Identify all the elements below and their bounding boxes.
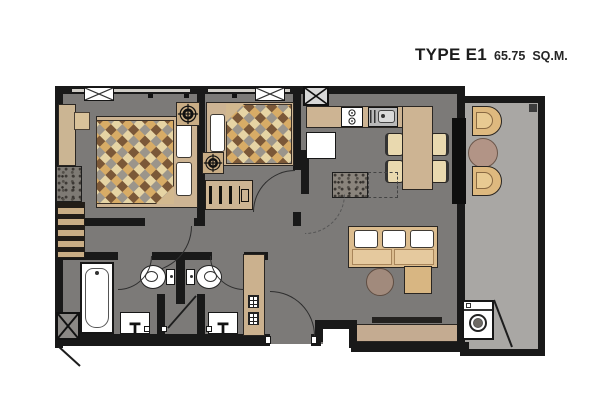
plan-title: TYPE E1 65.75 SQ.M. [415, 45, 585, 65]
unit-type-label: TYPE E1 [415, 45, 487, 65]
unit-area-value: 65.75 [494, 49, 525, 63]
unit-area-unit: SQ.M. [532, 49, 567, 63]
floor-plan-screen: TYPE E1 65.75 SQ.M. [0, 0, 600, 414]
